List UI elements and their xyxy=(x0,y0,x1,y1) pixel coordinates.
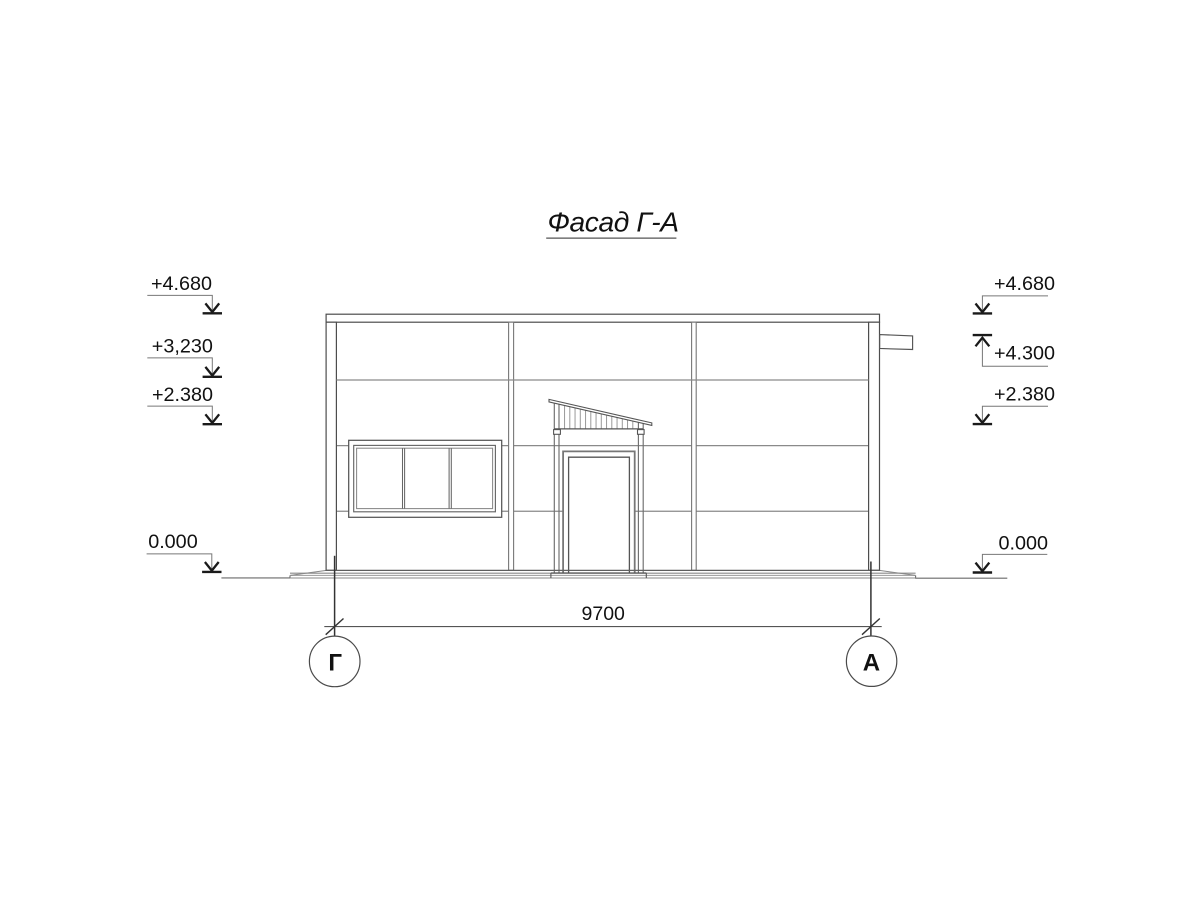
svg-text:Фасад Г-А: Фасад Г-А xyxy=(548,205,679,237)
svg-text:+4.680: +4.680 xyxy=(151,273,212,295)
svg-text:+3,230: +3,230 xyxy=(152,335,213,357)
svg-text:+4.300: +4.300 xyxy=(994,342,1055,364)
svg-text:+2.380: +2.380 xyxy=(152,384,213,406)
svg-text:+4.680: +4.680 xyxy=(994,273,1055,295)
svg-text:+2.380: +2.380 xyxy=(994,384,1055,406)
svg-text:Г: Г xyxy=(328,649,342,676)
svg-text:0.000: 0.000 xyxy=(999,533,1049,555)
svg-text:0.000: 0.000 xyxy=(148,531,198,553)
svg-text:А: А xyxy=(863,650,880,677)
svg-text:9700: 9700 xyxy=(582,603,626,625)
